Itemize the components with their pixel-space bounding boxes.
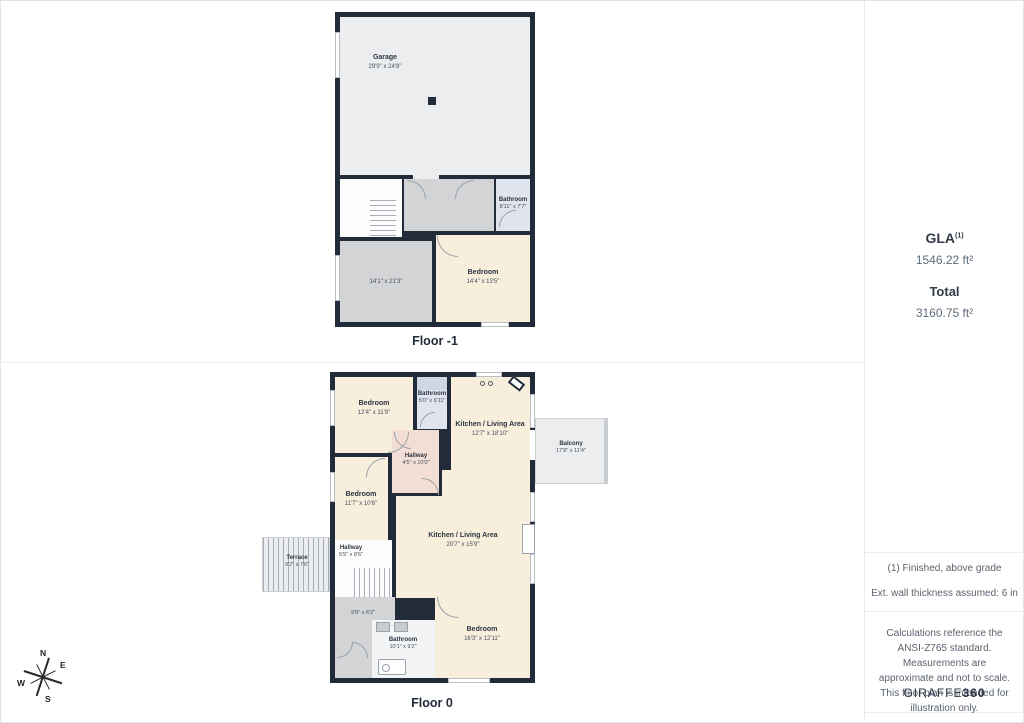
rec-room-label: 14'1" x 21'3" — [370, 278, 403, 286]
vanity — [376, 622, 390, 632]
compass-west: W — [17, 678, 25, 688]
balcony-label: Balcony 17'8" x 11'4" — [556, 440, 586, 456]
balcony: Balcony 17'8" x 11'4" — [535, 418, 608, 484]
kitchen-upper-label: Kitchen / Living Area 12'7" x 18'10" — [455, 420, 524, 438]
bathroom-label: Bathroom 8'11" x 7'7" — [499, 196, 527, 212]
window — [530, 492, 535, 522]
gla-heading: GLA(1) — [865, 230, 1024, 246]
kitchen-counter — [522, 524, 535, 554]
stove-burner — [488, 381, 493, 386]
floor-0-plan: Bedroom 12'4" x 11'9" Bathroom 5'0" x 6'… — [330, 372, 535, 683]
disclaimer-text: Calculations reference the ANSI-Z765 sta… — [877, 626, 1012, 716]
window — [481, 322, 509, 327]
floor-minus1-caption: Floor -1 — [412, 334, 458, 348]
hallway-lower-label: Hallway 5'5" x 8'6" — [339, 544, 363, 560]
window — [530, 394, 535, 428]
compass-north: N — [40, 648, 46, 658]
structural-post — [428, 97, 436, 105]
gla-value: 1546.22 ft² — [865, 253, 1024, 267]
floor-section-divider — [0, 362, 864, 363]
terrace-label: Terrace 9'2" x 7'6" — [285, 554, 309, 570]
window — [530, 554, 535, 584]
window — [335, 255, 340, 301]
kitchen-main-label: Kitchen / Living Area 20'7" x 15'9" — [428, 531, 497, 549]
balcony-door-opening — [530, 430, 535, 460]
vanity — [394, 622, 408, 632]
floor-0-caption: Floor 0 — [411, 696, 453, 710]
shower — [417, 377, 447, 390]
stove-burner — [480, 381, 485, 386]
wall-opening — [413, 175, 439, 179]
note-finished: (1) Finished, above grade — [865, 563, 1024, 574]
area-summary: GLA(1) 1546.22 ft² Total 3160.75 ft² — [865, 230, 1024, 320]
bedroom-mid-label: Bedroom 11'7" x 10'6" — [345, 490, 377, 508]
room-garage — [340, 17, 530, 175]
bedroom-lower-label: Bedroom 16'3" x 12'11" — [464, 625, 500, 643]
gla-footnote-marker: (1) — [955, 232, 964, 239]
window — [330, 390, 335, 426]
hallway-upper-label: Hallway 4'5" x 10'0" — [402, 452, 429, 468]
giraffe360-logo: GIRAFFE360 — [865, 686, 1024, 700]
window — [330, 472, 335, 502]
bedroom-label: Bedroom 14'4" x 13'5" — [467, 268, 500, 286]
compass-south: S — [45, 694, 51, 704]
summary-sidebar: GLA(1) 1546.22 ft² Total 3160.75 ft² (1)… — [865, 0, 1024, 723]
total-heading: Total — [865, 284, 1024, 299]
garage-label: Garage 29'9" x 24'8" — [369, 53, 402, 71]
window — [335, 32, 340, 78]
bathroom-lower-label: Bathroom 10'1" x 9'2" — [389, 636, 417, 652]
bathroom-top-label: Bathroom 5'0" x 6'11" — [418, 390, 446, 406]
compass-east: E — [60, 660, 66, 670]
stairs — [354, 568, 392, 600]
compass-rose: N E W S — [16, 650, 70, 704]
window — [476, 372, 502, 377]
note-wall-thickness: Ext. wall thickness assumed: 6 in — [865, 588, 1024, 599]
floor-minus1-plan: Garage 29'9" x 24'8" Bathroom 8'11" x 7'… — [335, 12, 535, 327]
bathtub — [378, 659, 406, 675]
stairs — [370, 200, 396, 237]
terrace: Terrace 9'2" x 7'6" — [262, 537, 330, 592]
window — [448, 678, 490, 683]
bedroom-top-label: Bedroom 12'4" x 11'9" — [358, 399, 390, 417]
storage-label: 9'8" x 6'2" — [351, 610, 375, 618]
total-value: 3160.75 ft² — [865, 306, 1024, 320]
